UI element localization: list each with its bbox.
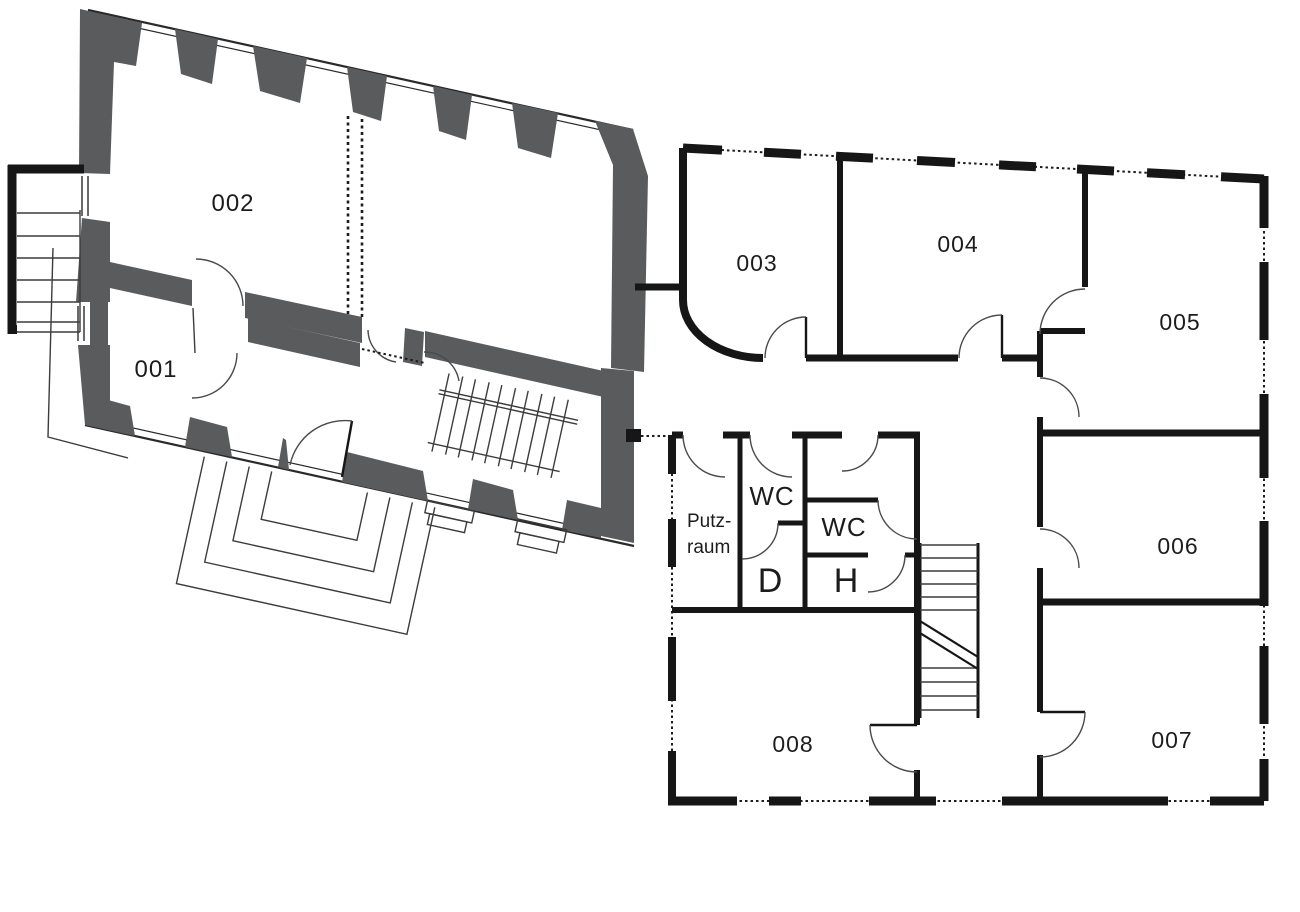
room-002-label: 002	[211, 190, 254, 217]
old-doors	[192, 259, 459, 477]
room-001-label: 001	[134, 356, 177, 383]
new-building-stair	[920, 543, 978, 718]
south-steps-2	[512, 519, 566, 554]
room-005-label: 005	[1159, 309, 1200, 335]
room-003-label: 003	[736, 250, 777, 276]
room-007-label: 007	[1151, 727, 1192, 753]
wc-left-label: WC	[749, 481, 794, 511]
curved-wall-003	[683, 300, 763, 358]
damen-label: D	[758, 562, 783, 600]
room-006-label: 006	[1157, 533, 1198, 559]
wc-right-label: WC	[821, 512, 866, 542]
exterior-stair-west	[8, 165, 84, 334]
old-building: 002 001	[8, 9, 648, 634]
room-008-label: 008	[772, 731, 813, 757]
floor-plan: 002 001	[0, 0, 1300, 912]
old-building-stair	[426, 372, 582, 481]
putzraum-label-line2: raum	[687, 537, 730, 558]
putzraum-label-line1: Putz-	[687, 511, 731, 532]
floor-plan-page: 002 001	[0, 0, 1300, 912]
room-004-label: 004	[937, 231, 978, 257]
connector-wall-dash	[626, 429, 641, 442]
removed-wall-dashes	[348, 116, 362, 320]
herren-label: H	[834, 562, 859, 600]
new-building: 003 004 005 006 007 008 WC WC D H Putz- …	[668, 148, 1264, 801]
